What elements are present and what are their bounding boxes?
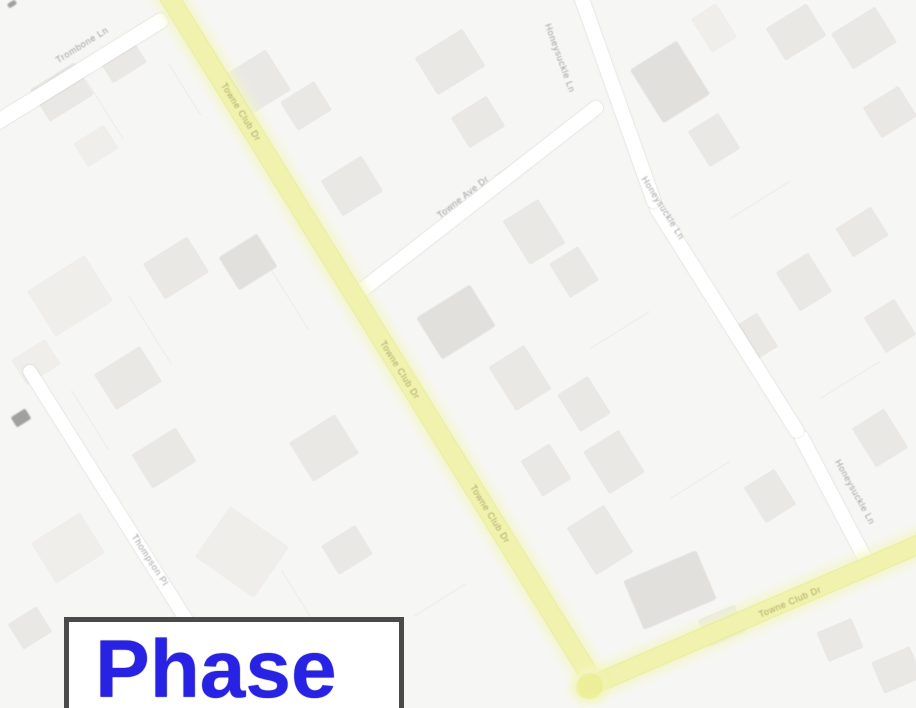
building-footprint xyxy=(583,430,645,495)
building-footprint xyxy=(863,86,916,139)
building-footprint xyxy=(488,345,551,411)
building-footprint xyxy=(451,96,506,149)
cutoff-label-fragment xyxy=(11,408,32,427)
route-highlight-segment xyxy=(141,0,609,698)
road-honeysuckle-ln xyxy=(648,200,806,440)
street-label-honeysuckle: Honeysuckle Ln xyxy=(543,22,577,93)
building-footprint xyxy=(549,246,599,298)
building-footprint xyxy=(766,3,827,61)
building-footprint xyxy=(502,199,565,265)
building-footprint xyxy=(195,506,290,598)
lot-line xyxy=(590,311,650,349)
phase-label: Phase 2 xyxy=(95,624,337,708)
building-footprint xyxy=(73,125,118,168)
building-footprint xyxy=(219,234,276,290)
building-footprint xyxy=(816,618,863,662)
building-footprint xyxy=(289,414,359,482)
cutoff-label-fragment xyxy=(7,0,17,9)
building-footprint xyxy=(835,206,889,257)
building-footprint xyxy=(744,469,797,524)
building-footprint xyxy=(852,408,909,467)
building-footprint xyxy=(415,29,486,96)
lot-line xyxy=(414,584,465,617)
building-footprint xyxy=(27,255,113,337)
building-footprint xyxy=(864,299,916,354)
building-footprint xyxy=(871,646,916,694)
building-footprint xyxy=(557,376,611,432)
building-footprint xyxy=(321,155,384,216)
building-footprint xyxy=(143,236,209,299)
building-footprint xyxy=(8,606,53,649)
building-footprint xyxy=(321,525,373,575)
building-footprint xyxy=(688,113,741,168)
lot-line xyxy=(169,64,202,115)
street-label-thompson: Thompson Pl xyxy=(130,532,171,587)
building-footprint xyxy=(776,252,833,311)
building-footprint xyxy=(691,3,738,53)
lot-line xyxy=(271,270,309,330)
building-footprint xyxy=(831,6,897,69)
building-footprint xyxy=(31,512,106,583)
lot-line xyxy=(820,361,880,399)
building-footprint xyxy=(631,41,710,122)
street-label-towne-club: Towne Club Dr xyxy=(378,339,422,401)
building-footprint xyxy=(131,427,196,488)
lot-line xyxy=(670,461,730,499)
building-footprint xyxy=(520,443,571,497)
building-footprint xyxy=(567,505,634,576)
building-footprint xyxy=(94,346,162,410)
street-label-towne-club: Towne Club Dr xyxy=(468,483,512,545)
map-image: Trombone Ln Towne Club Dr Towne Club Dr … xyxy=(0,0,916,708)
route-highlight-bend xyxy=(577,673,603,699)
lot-line xyxy=(730,181,790,219)
building-footprint xyxy=(417,285,495,359)
phase-annotation-box: Phase 2 xyxy=(64,617,404,708)
